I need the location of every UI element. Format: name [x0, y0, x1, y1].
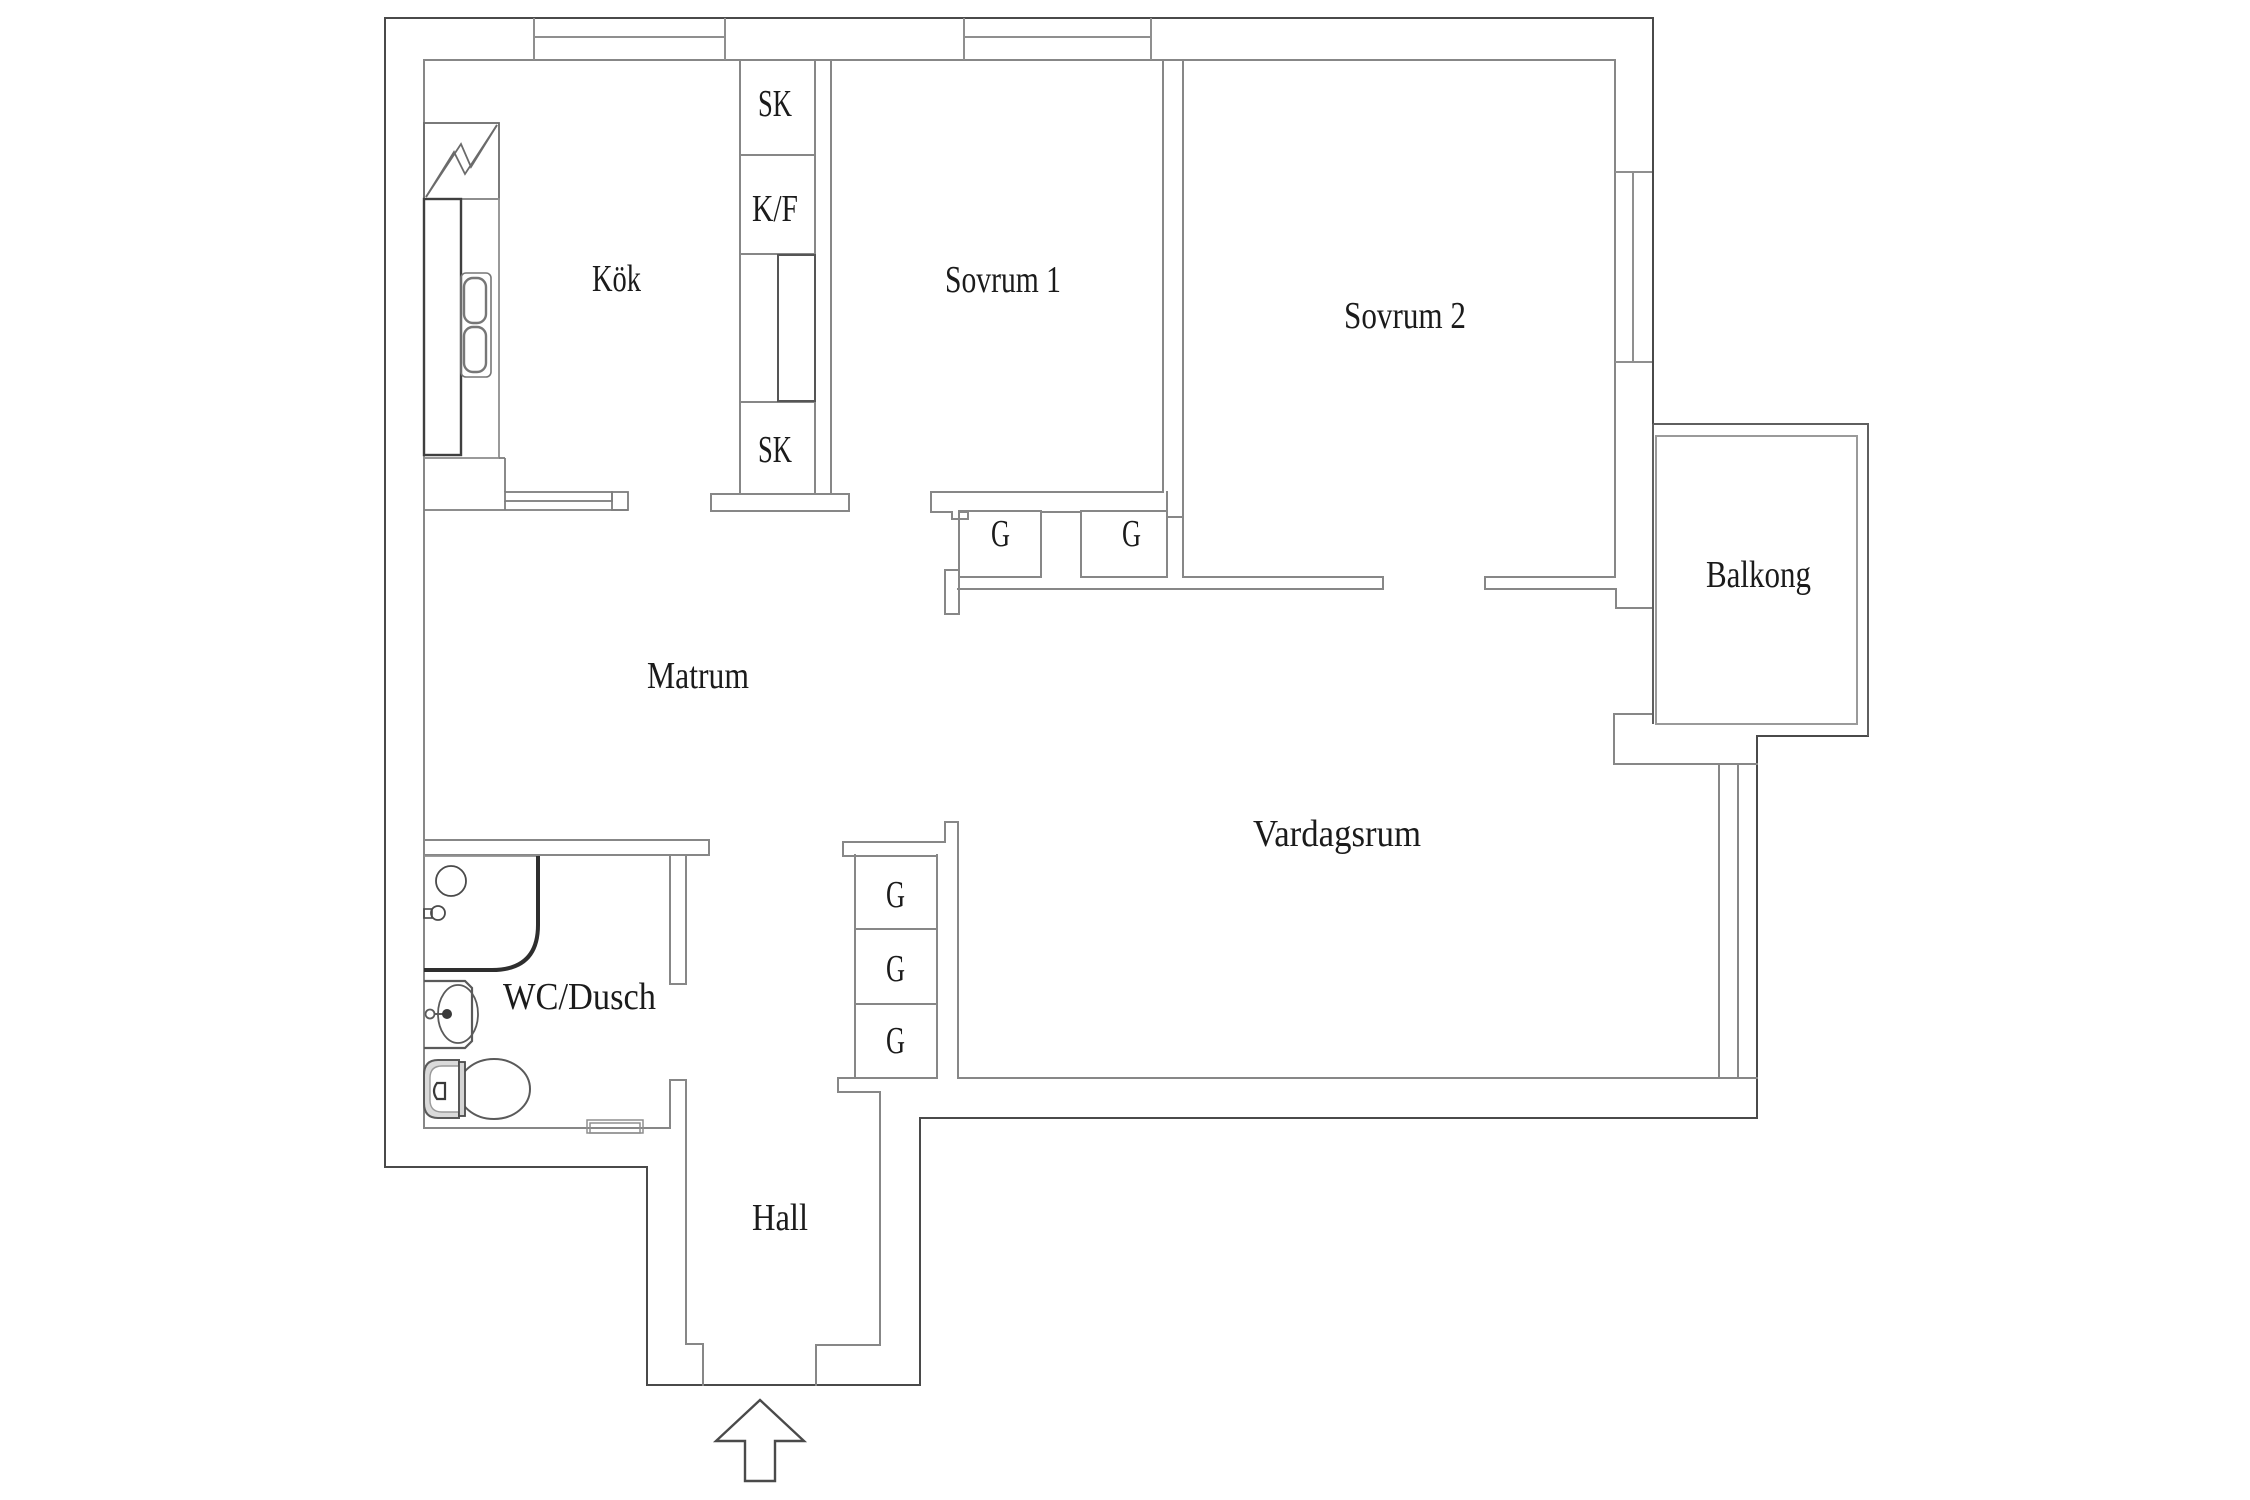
svg-text:G: G: [991, 513, 1010, 555]
svg-text:SK: SK: [758, 429, 792, 471]
svg-text:G: G: [886, 1020, 905, 1062]
svg-text:Sovrum 2: Sovrum 2: [1344, 295, 1466, 337]
svg-text:SK: SK: [758, 83, 792, 125]
svg-text:Sovrum 1: Sovrum 1: [945, 259, 1061, 301]
svg-text:G: G: [886, 874, 905, 916]
svg-text:K/F: K/F: [752, 188, 798, 230]
svg-text:Hall: Hall: [752, 1197, 808, 1239]
svg-text:G: G: [1122, 513, 1141, 555]
svg-text:Balkong: Balkong: [1706, 554, 1811, 596]
svg-text:WC/Dusch: WC/Dusch: [503, 976, 656, 1018]
svg-text:Kök: Kök: [592, 258, 641, 300]
svg-text:Vardagsrum: Vardagsrum: [1253, 813, 1421, 855]
svg-text:Matrum: Matrum: [647, 655, 749, 697]
svg-text:G: G: [886, 948, 905, 990]
